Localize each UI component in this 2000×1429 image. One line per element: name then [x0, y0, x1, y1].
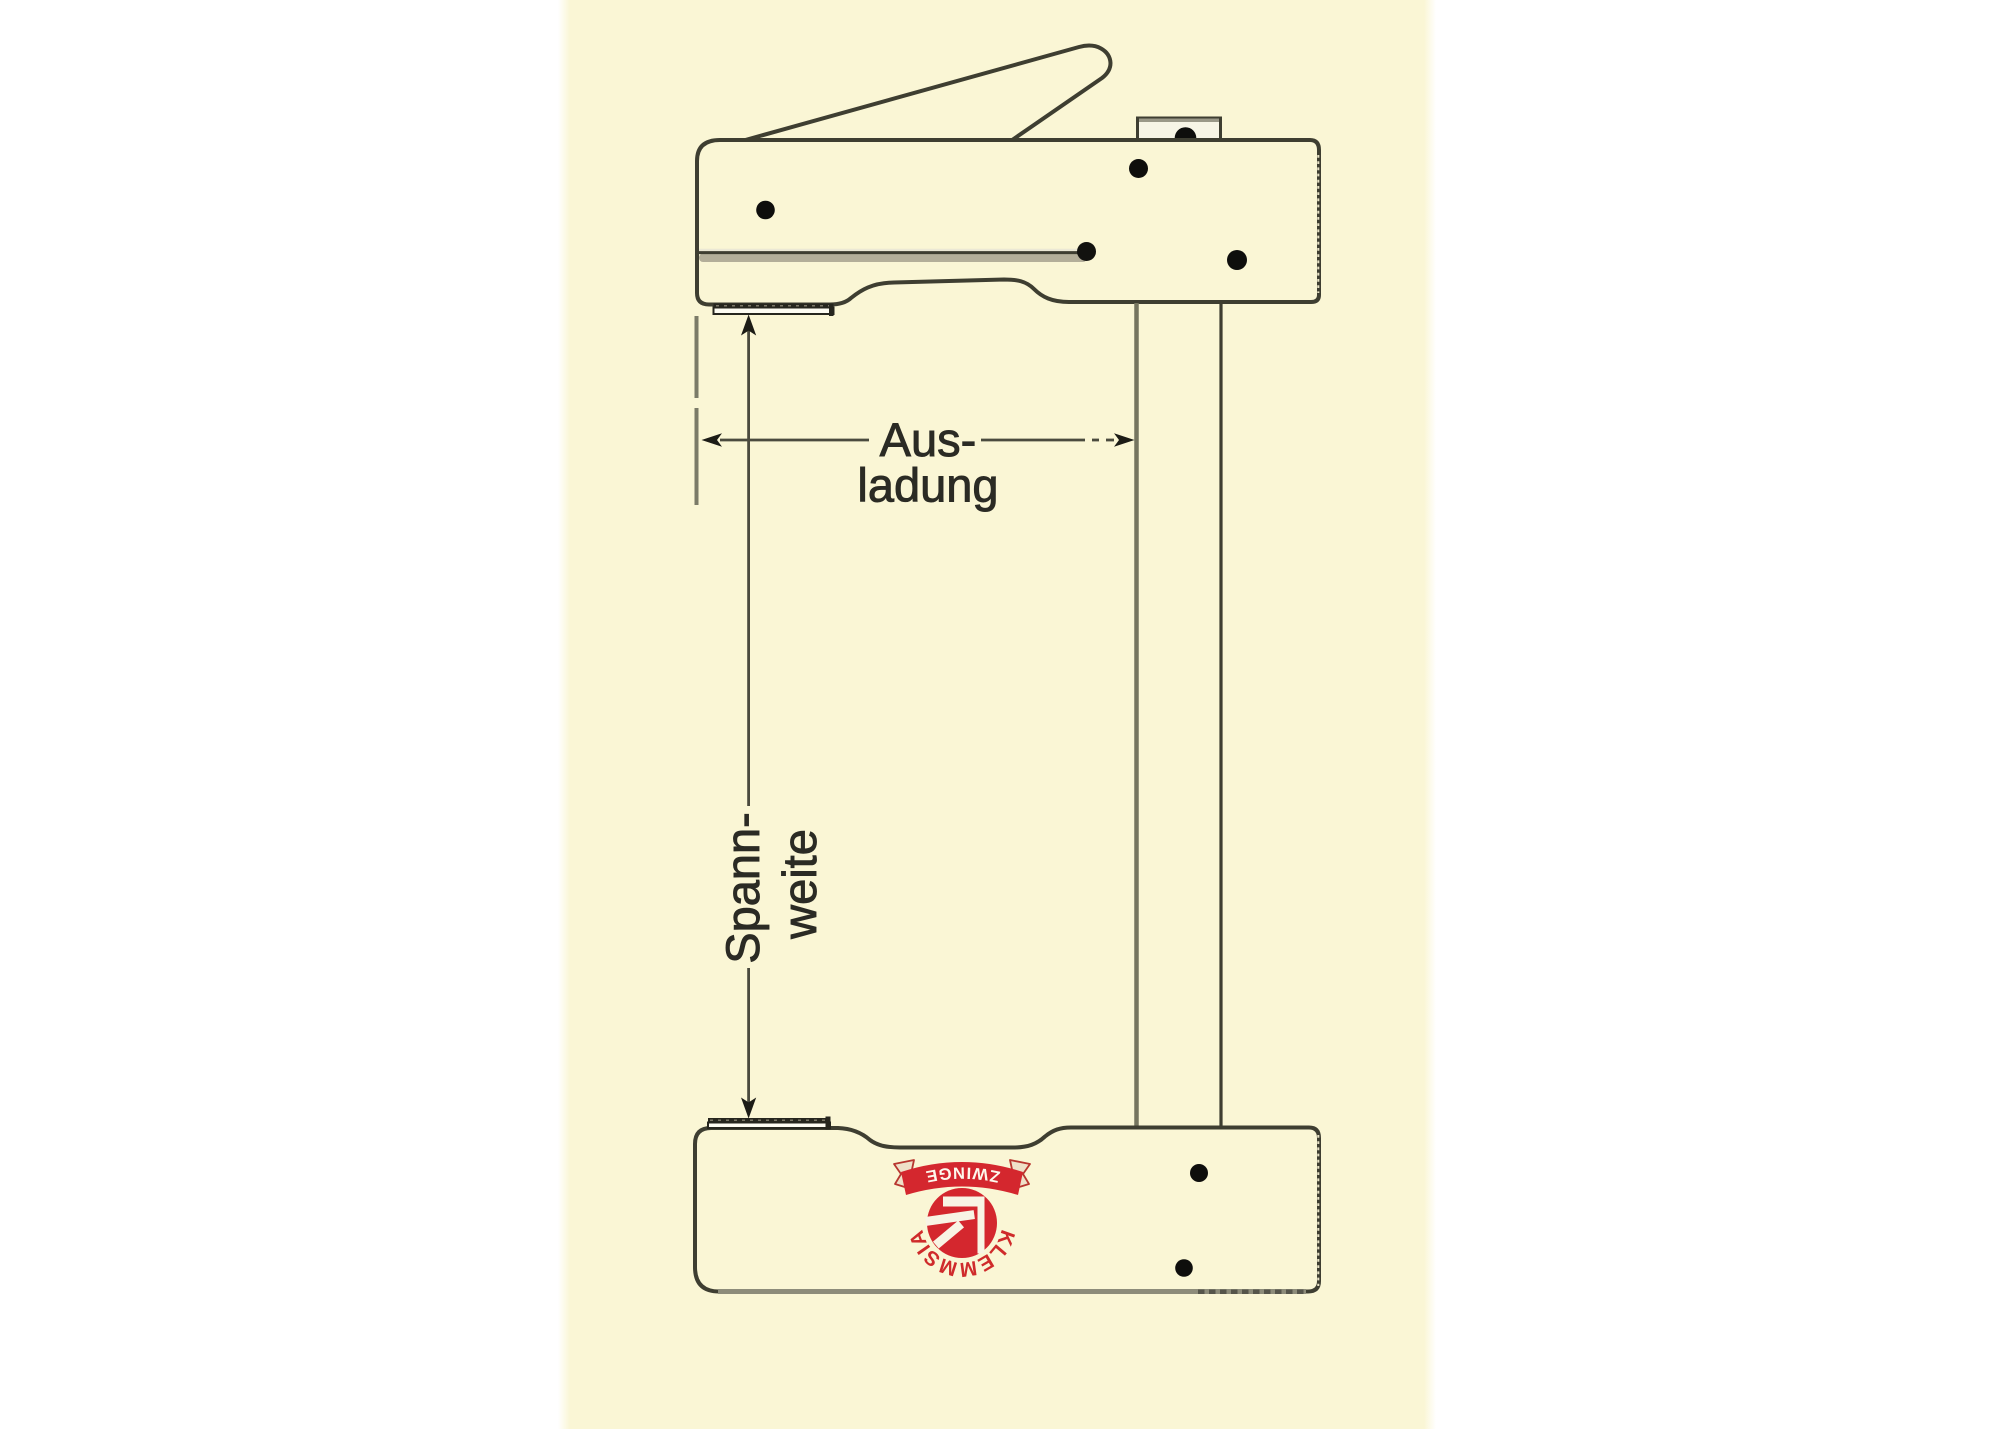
svg-text:Spann-: Spann-	[716, 812, 769, 964]
svg-text:weite: weite	[773, 829, 826, 940]
svg-text:ladung: ladung	[857, 459, 998, 512]
